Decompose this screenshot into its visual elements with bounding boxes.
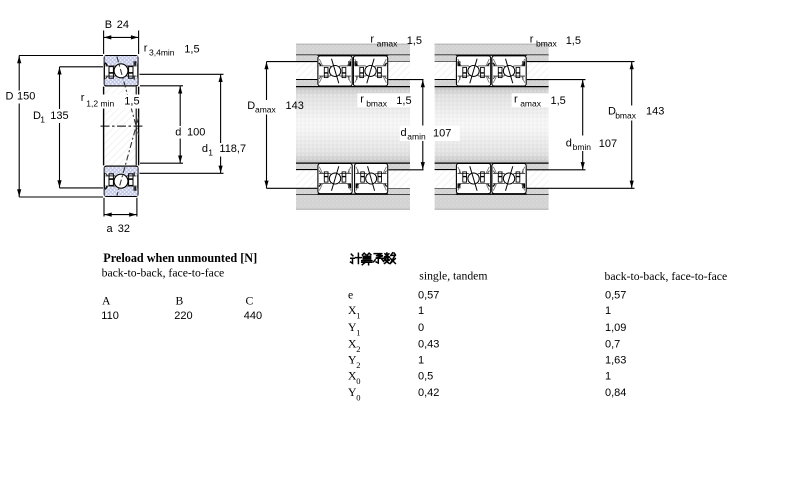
svg-text:amax: amax [520, 98, 542, 108]
svg-text:110: 110 [101, 310, 119, 322]
svg-text:d: d [175, 127, 181, 139]
svg-text:1: 1 [208, 148, 213, 158]
svg-text:1: 1 [418, 305, 424, 317]
svg-text:r: r [514, 93, 518, 105]
svg-text:0,42: 0,42 [418, 387, 439, 399]
svg-text:2: 2 [356, 360, 360, 370]
svg-text:1,5: 1,5 [396, 95, 411, 107]
svg-text:r: r [81, 92, 85, 104]
svg-text:1: 1 [605, 371, 611, 383]
svg-text:2: 2 [356, 344, 360, 354]
svg-text:1: 1 [356, 328, 360, 338]
svg-text:1,5: 1,5 [566, 35, 581, 47]
svg-text:B: B [105, 19, 112, 31]
svg-text:d: d [401, 127, 407, 139]
svg-text:1,5: 1,5 [124, 96, 139, 108]
svg-text:amax: amax [377, 39, 399, 49]
svg-text:e: e [348, 289, 353, 302]
svg-text:d: d [566, 138, 572, 150]
svg-text:1: 1 [356, 311, 360, 321]
svg-text:r: r [360, 93, 364, 105]
svg-text:0,84: 0,84 [605, 387, 626, 399]
svg-text:1,5: 1,5 [184, 44, 199, 56]
svg-text:back-to-back, face-to-face: back-to-back, face-to-face [102, 267, 225, 280]
svg-text:1: 1 [40, 115, 45, 125]
svg-text:1,5: 1,5 [407, 35, 422, 47]
svg-text:1,5: 1,5 [551, 95, 566, 107]
svg-text:r: r [370, 34, 374, 46]
svg-text:135: 135 [50, 110, 68, 122]
svg-text:0,43: 0,43 [418, 339, 439, 351]
svg-text:0,5: 0,5 [418, 371, 433, 383]
svg-text:3,4min: 3,4min [149, 47, 175, 57]
svg-text:107: 107 [433, 128, 451, 140]
svg-text:0,57: 0,57 [418, 290, 439, 302]
svg-text:amin: amin [407, 132, 426, 142]
svg-text:24: 24 [117, 19, 129, 31]
svg-text:150: 150 [17, 91, 35, 103]
svg-text:A: A [102, 295, 111, 308]
svg-text:0: 0 [356, 393, 360, 403]
svg-text:107: 107 [599, 138, 617, 150]
svg-text:Preload when unmounted [N]: Preload when unmounted [N] [103, 251, 257, 265]
svg-text:a: a [107, 223, 114, 235]
svg-text:amax: amax [255, 105, 277, 115]
svg-text:220: 220 [174, 310, 192, 322]
svg-text:single, tandem: single, tandem [419, 270, 487, 283]
svg-text:1,2 min: 1,2 min [86, 98, 114, 108]
svg-text:0: 0 [356, 376, 360, 386]
svg-text:0: 0 [418, 322, 424, 334]
svg-text:B: B [176, 295, 184, 308]
svg-text:bmin: bmin [573, 142, 592, 152]
svg-text:1: 1 [605, 305, 611, 317]
svg-text:bmax: bmax [615, 111, 637, 121]
svg-text:D: D [6, 91, 14, 103]
svg-text:0,7: 0,7 [605, 339, 620, 351]
svg-text:1,63: 1,63 [605, 355, 626, 367]
svg-text:bmax: bmax [366, 98, 388, 108]
svg-text:143: 143 [646, 106, 664, 118]
svg-text:d: d [202, 143, 208, 155]
svg-text:1,09: 1,09 [605, 322, 626, 334]
svg-text:143: 143 [286, 100, 304, 112]
svg-text:C: C [246, 295, 254, 308]
svg-text:bmax: bmax [536, 39, 558, 49]
svg-text:1: 1 [418, 355, 424, 367]
svg-text:100: 100 [187, 127, 205, 139]
svg-text:118,7: 118,7 [219, 143, 246, 155]
svg-text:r: r [144, 42, 148, 54]
svg-text:back-to-back, face-to-face: back-to-back, face-to-face [605, 270, 728, 283]
svg-text:r: r [530, 34, 534, 46]
svg-text:440: 440 [244, 310, 262, 322]
svg-text:32: 32 [118, 223, 130, 235]
svg-text:0,57: 0,57 [605, 290, 626, 302]
